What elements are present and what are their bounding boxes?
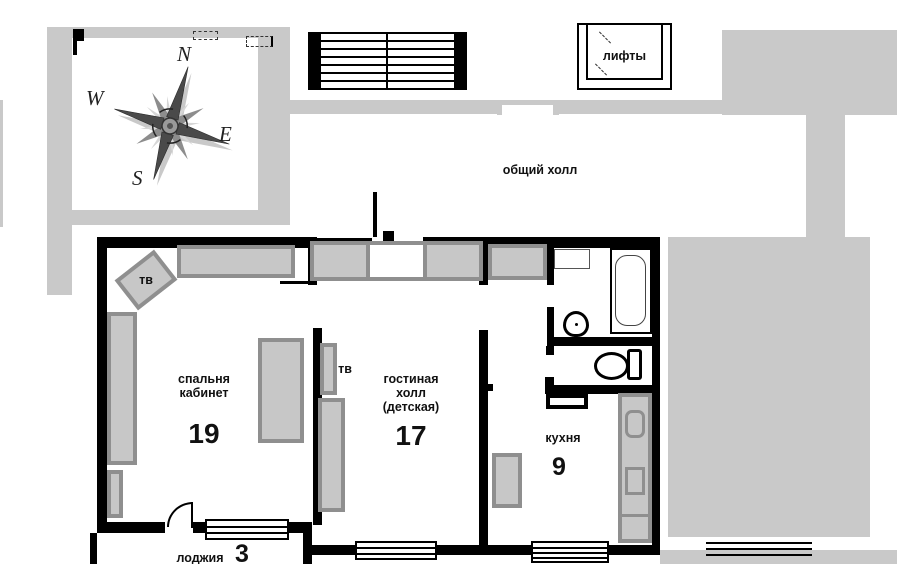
stove xyxy=(625,467,645,495)
compass-north-label: N xyxy=(177,42,191,67)
corridor-wall xyxy=(497,100,502,115)
living-label-line3: (детская) xyxy=(383,400,439,414)
door-leaf xyxy=(191,502,193,528)
compass-west-label: W xyxy=(86,86,104,111)
bedroom-label: спальня кабинет xyxy=(160,372,248,400)
plan-mark xyxy=(246,36,273,47)
wall xyxy=(547,307,554,337)
cabinet xyxy=(107,470,123,518)
toilet-bowl xyxy=(594,352,629,380)
window-symbol xyxy=(205,519,289,540)
compass-east-label: E xyxy=(219,122,232,147)
toilet-tank xyxy=(627,349,642,380)
sliding-door-line xyxy=(280,281,313,284)
cabinet xyxy=(318,398,345,512)
floor-plan: N W E S лифты общий холл xyxy=(0,0,897,564)
wall xyxy=(303,522,312,564)
masked-area xyxy=(72,210,290,225)
wardrobe xyxy=(488,244,547,280)
sofa xyxy=(177,245,295,278)
loggia-wall xyxy=(90,533,97,564)
wall xyxy=(312,545,357,555)
wall xyxy=(547,337,653,346)
stair-divider xyxy=(386,32,388,90)
elevators-box: лифты xyxy=(577,23,672,90)
living-label-line2: холл xyxy=(396,386,426,400)
counter-divider xyxy=(622,514,648,517)
bathtub-inner xyxy=(615,255,646,326)
living-area: 17 xyxy=(391,420,431,452)
plan-mark xyxy=(193,31,218,40)
stair-side xyxy=(454,32,467,90)
masked-area xyxy=(722,30,897,115)
loggia-area: 3 xyxy=(228,540,256,564)
kitchen-sink xyxy=(625,410,645,438)
wall xyxy=(488,384,493,391)
corridor-wall xyxy=(558,100,722,114)
corridor-wall xyxy=(285,100,497,114)
bedroom-label-line1: спальня xyxy=(178,372,230,386)
kitchen-label: кухня xyxy=(533,431,593,445)
wardrobe-section xyxy=(427,245,479,277)
wall xyxy=(479,330,488,548)
door-arc xyxy=(167,502,193,527)
plan-mark xyxy=(73,29,84,41)
bathroom-sink xyxy=(563,311,589,337)
living-label: гостиная холл (детская) xyxy=(365,372,457,414)
vent-shaft xyxy=(546,394,588,409)
tv-label: тв xyxy=(332,362,358,376)
tv-label: тв xyxy=(125,273,167,287)
corridor-wall xyxy=(497,100,558,105)
wardrobe-section xyxy=(366,245,426,277)
tv-stand: тв xyxy=(115,250,178,311)
common-hall-label: общий холл xyxy=(495,163,585,177)
loggia-label: лоджия xyxy=(168,551,232,564)
wardrobe-section xyxy=(314,245,366,277)
bathtub xyxy=(610,248,652,334)
compass-south-label: S xyxy=(132,166,143,191)
wall xyxy=(652,237,660,555)
washing-machine xyxy=(554,249,590,269)
wall xyxy=(547,237,554,285)
masked-area xyxy=(0,100,3,227)
masked-area xyxy=(47,27,72,295)
wall xyxy=(97,522,165,533)
bed xyxy=(258,338,304,443)
staircase-symbol xyxy=(308,28,467,90)
wall xyxy=(546,346,554,355)
wall xyxy=(97,237,107,533)
living-label-line1: гостиная xyxy=(383,372,438,386)
stair-side xyxy=(308,32,321,90)
stair-lines-symbol xyxy=(706,542,812,558)
plan-mark xyxy=(73,41,77,55)
corridor-wall-stub xyxy=(373,192,377,237)
wardrobe xyxy=(107,312,137,465)
masked-area xyxy=(806,115,845,237)
bedroom-label-line2: кабинет xyxy=(179,386,228,400)
window-symbol xyxy=(531,541,609,563)
elevators-label: лифты xyxy=(579,49,670,63)
kitchen-area: 9 xyxy=(545,453,573,482)
wardrobe-unit xyxy=(310,241,483,281)
window-symbol xyxy=(355,541,437,560)
bedroom-area: 19 xyxy=(184,418,224,450)
masked-area xyxy=(258,27,290,225)
masked-area xyxy=(668,237,870,537)
kitchen-counter xyxy=(618,393,652,543)
fridge xyxy=(492,453,522,508)
